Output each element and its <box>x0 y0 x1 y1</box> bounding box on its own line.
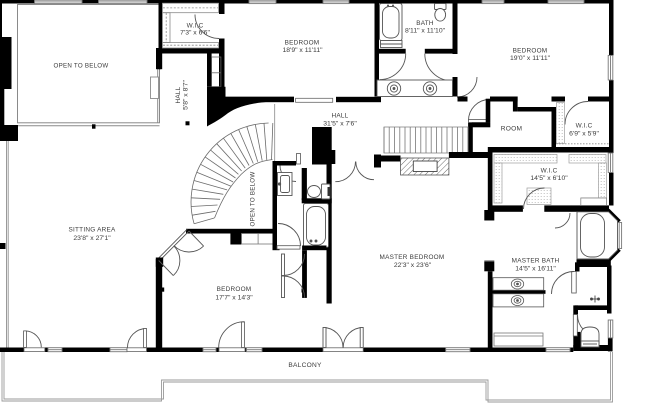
svg-text:W.I.C: W.I.C <box>576 123 593 130</box>
svg-text:22'3" x 23'6": 22'3" x 23'6" <box>394 262 432 269</box>
svg-text:BEDROOM: BEDROOM <box>513 47 548 54</box>
svg-text:SITTING AREA: SITTING AREA <box>68 227 116 234</box>
svg-text:ROOM: ROOM <box>501 125 523 132</box>
svg-text:8'11" x 11'10": 8'11" x 11'10" <box>405 27 446 34</box>
svg-text:BEDROOM: BEDROOM <box>285 40 320 47</box>
svg-text:6'9" x 5'9": 6'9" x 5'9" <box>569 131 599 138</box>
svg-text:14'5" x 16'11": 14'5" x 16'11" <box>515 266 556 273</box>
svg-text:18'9" x 11'11": 18'9" x 11'11" <box>282 47 323 54</box>
svg-text:MASTER BATH: MASTER BATH <box>512 258 560 265</box>
svg-text:5'8" x 8'7": 5'8" x 8'7" <box>183 80 190 110</box>
svg-text:MASTER BEDROOM: MASTER BEDROOM <box>380 254 445 261</box>
svg-text:31'5" x 7'6": 31'5" x 7'6" <box>323 121 357 128</box>
svg-text:19'0" x 11'11": 19'0" x 11'11" <box>510 55 551 62</box>
svg-text:BEDROOM: BEDROOM <box>217 286 252 293</box>
svg-text:BALCONY: BALCONY <box>288 362 322 369</box>
svg-text:BATH: BATH <box>416 20 434 27</box>
svg-text:W.I.C: W.I.C <box>187 23 204 30</box>
svg-text:7'3" x 6'6": 7'3" x 6'6" <box>180 30 210 37</box>
svg-text:OPEN TO BELOW: OPEN TO BELOW <box>54 63 109 70</box>
svg-text:W.I.C: W.I.C <box>541 168 558 175</box>
svg-text:HALL: HALL <box>332 113 349 120</box>
svg-text:23'8" x 27'1": 23'8" x 27'1" <box>73 235 111 242</box>
svg-text:OPEN TO BELOW: OPEN TO BELOW <box>249 172 256 227</box>
svg-text:HALL: HALL <box>175 86 182 103</box>
svg-text:14'5" x 6'10": 14'5" x 6'10" <box>530 175 568 182</box>
svg-text:17'7" x 14'3": 17'7" x 14'3" <box>215 295 253 302</box>
